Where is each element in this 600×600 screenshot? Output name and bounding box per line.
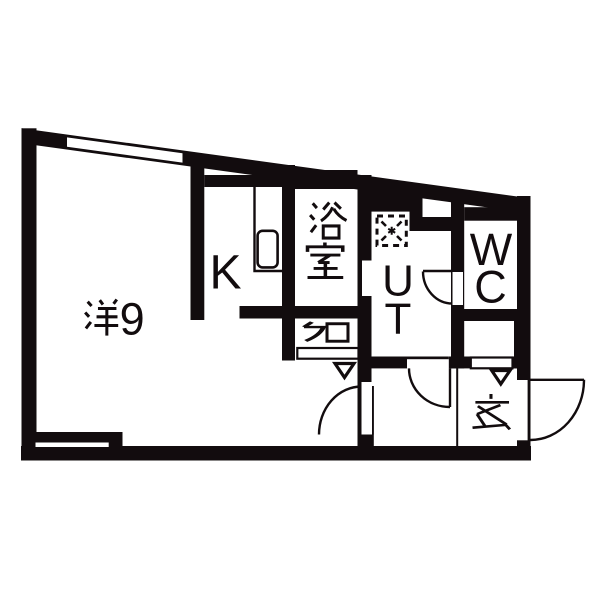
svg-text:K: K: [209, 247, 241, 300]
svg-text:9: 9: [120, 294, 145, 345]
svg-text:C: C: [474, 261, 507, 312]
svg-text:T: T: [385, 295, 412, 344]
